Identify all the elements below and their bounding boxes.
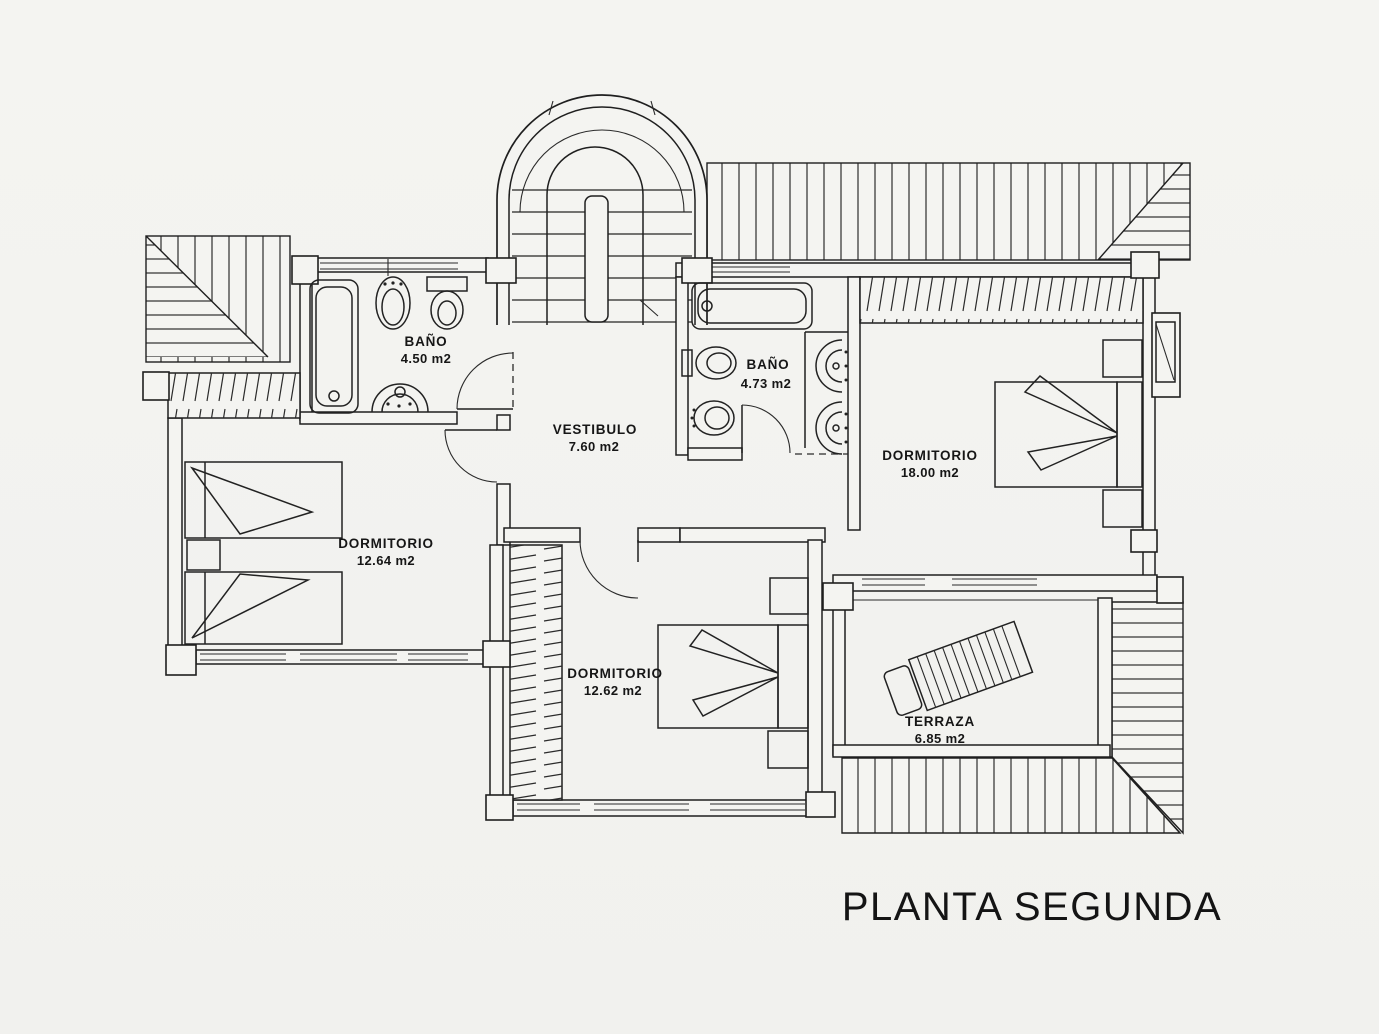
room-area-vestibulo: 7.60 m2	[569, 439, 620, 454]
floor-plan-drawing: BAÑO 4.50 m2 VESTIBULO 7.60 m2 BAÑO 4.73…	[0, 0, 1379, 1034]
room-area-dormitorio-1: 18.00 m2	[901, 465, 959, 480]
nightstand-icon	[187, 540, 220, 570]
pilaster	[1131, 252, 1159, 278]
lounge-base	[909, 621, 1033, 710]
wall	[808, 540, 822, 795]
pillow	[1025, 376, 1117, 433]
pilaster	[143, 372, 169, 400]
pilaster	[1157, 577, 1183, 603]
wall	[833, 575, 1157, 591]
door-swing	[445, 430, 497, 482]
lounge-chair-icon	[882, 621, 1033, 720]
double-bed-icon	[995, 382, 1117, 487]
wall	[680, 528, 825, 542]
pilaster	[292, 256, 318, 284]
bedroom-1-furniture	[995, 340, 1142, 527]
pillow	[693, 677, 778, 716]
room-area-bano-1: 4.50 m2	[401, 351, 452, 366]
wall	[688, 448, 742, 460]
bidet-icon	[691, 401, 735, 435]
chimney	[1152, 313, 1180, 397]
pilaster	[486, 795, 513, 820]
pilaster	[682, 258, 712, 283]
wall	[638, 528, 680, 542]
wardrobe-hangers	[510, 545, 562, 800]
room-area-terraza: 6.85 m2	[915, 731, 966, 746]
room-name-bano-2: BAÑO	[747, 357, 790, 372]
wall	[513, 800, 808, 816]
door-swing	[580, 540, 638, 598]
room-area-dormitorio-2: 12.64 m2	[357, 553, 415, 568]
toilet-icon	[376, 277, 410, 329]
pilaster	[1131, 530, 1157, 552]
washbasin-icon	[816, 402, 847, 454]
room-area-dormitorio-3: 12.62 m2	[584, 683, 642, 698]
nightstand-icon	[770, 578, 808, 614]
pilaster	[483, 641, 510, 667]
wall	[497, 415, 510, 430]
wall	[168, 418, 182, 648]
toilet-icon	[682, 347, 736, 379]
wall	[848, 277, 860, 530]
floor-plan-page: BAÑO 4.50 m2 VESTIBULO 7.60 m2 BAÑO 4.73…	[0, 0, 1379, 1034]
pilaster	[806, 792, 835, 817]
pilaster	[823, 583, 853, 610]
terrace-parapet	[1098, 598, 1112, 757]
bedroom-3-furniture	[658, 578, 808, 768]
double-bed-icon	[658, 625, 778, 728]
terrace-parapet	[833, 598, 845, 755]
pillow	[1028, 436, 1117, 470]
plan-title: PLANTA SEGUNDA	[842, 885, 1222, 929]
terrace-parapet	[833, 745, 1110, 757]
bedroom-2-furniture	[185, 462, 342, 644]
nightstand-icon	[768, 731, 808, 768]
room-name-dormitorio-2: DORMITORIO	[338, 536, 434, 551]
nightstand-icon	[1103, 490, 1142, 527]
stair-newel-wall	[585, 196, 608, 322]
bathtub-icon	[310, 280, 358, 413]
pillow	[192, 468, 312, 534]
wall	[300, 258, 488, 272]
room-area-bano-2: 4.73 m2	[741, 376, 792, 391]
wall	[504, 528, 580, 542]
wall	[676, 263, 1136, 277]
twin-bed-icon	[185, 572, 342, 644]
bidet-icon	[427, 277, 467, 329]
lounge-headrest	[883, 665, 923, 717]
wall	[300, 412, 457, 424]
door-swing	[742, 405, 790, 453]
headboard	[1117, 382, 1142, 487]
washbasin-icon	[816, 340, 848, 392]
pillow	[192, 574, 308, 638]
wardrobe-hangers	[168, 373, 300, 418]
washbasin-icon	[372, 384, 428, 412]
room-name-bano-1: BAÑO	[405, 334, 448, 349]
pilaster	[486, 258, 516, 283]
room-name-terraza: TERRAZA	[905, 714, 975, 729]
roof-top-right	[707, 163, 1190, 260]
door-swing	[457, 353, 513, 409]
pilaster	[166, 645, 196, 675]
room-name-vestibulo: VESTIBULO	[553, 422, 637, 437]
roof-top-left	[146, 236, 290, 362]
wall	[490, 545, 503, 803]
nightstand-icon	[1103, 340, 1142, 377]
wardrobe-hangers	[860, 277, 1143, 323]
room-name-dormitorio-3: DORMITORIO	[567, 666, 663, 681]
pillow	[690, 630, 778, 673]
wall	[196, 650, 486, 664]
headboard	[778, 625, 808, 728]
bathtub-icon	[692, 283, 812, 329]
room-name-dormitorio-1: DORMITORIO	[882, 448, 978, 463]
